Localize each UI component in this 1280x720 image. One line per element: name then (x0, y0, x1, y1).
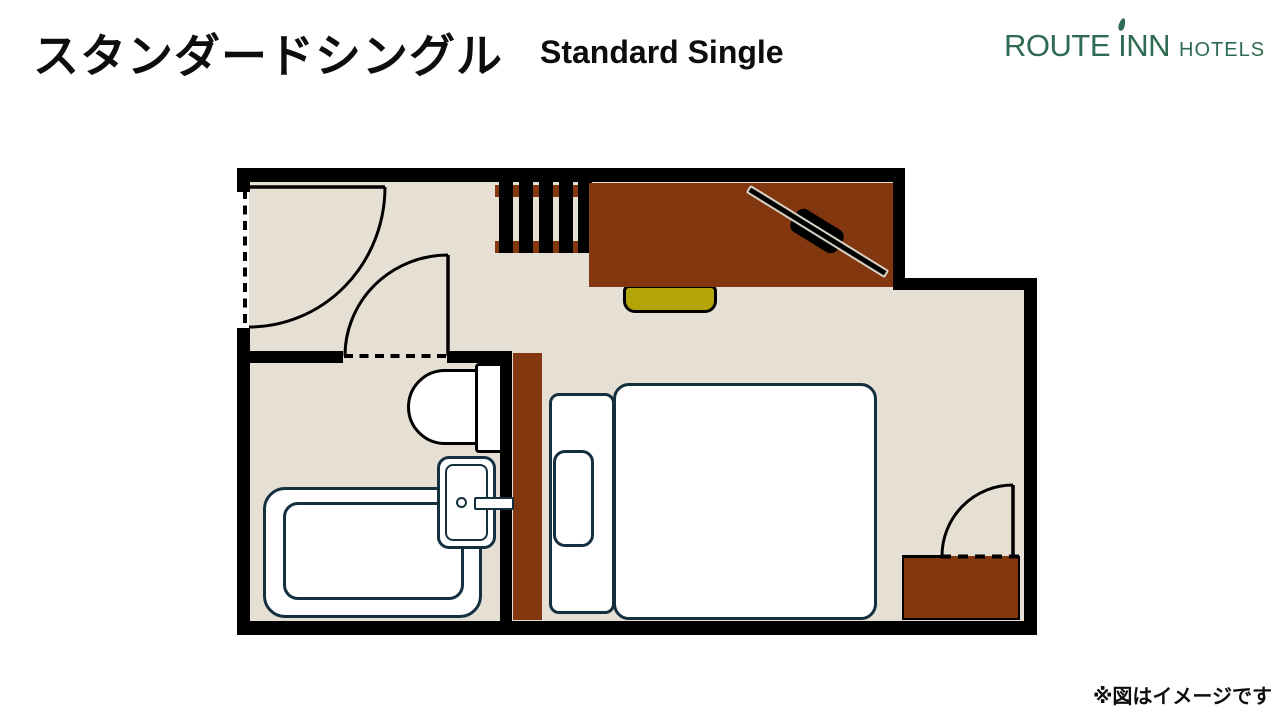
wall-left-upper (237, 168, 250, 192)
hanger-rack-post (519, 175, 533, 253)
bathroom-wall-vertical (500, 351, 512, 621)
bathroom-wall-left (249, 351, 343, 363)
wall-step (893, 278, 1037, 290)
wall-right (1024, 278, 1037, 635)
wall-right-upper (893, 168, 905, 290)
bed-pillow (553, 450, 594, 547)
nightstand-cabinet (513, 353, 542, 620)
desk (589, 183, 893, 287)
desk-chair (623, 285, 717, 313)
hanger-rack-post (539, 175, 553, 253)
hanger-rack-post (559, 175, 573, 253)
wall-top (237, 168, 905, 182)
wall-left-lower (237, 328, 250, 635)
sink-faucet (474, 497, 514, 510)
cabinet-fridge (902, 556, 1020, 620)
cabinet-fridge-top-edge (902, 555, 942, 558)
floor-plan (0, 0, 1280, 720)
hanger-rack-post (499, 175, 513, 253)
bed-mattress (613, 383, 877, 620)
disclaimer-note: ※図はイメージです (1093, 680, 1272, 709)
page: スタンダードシングル Standard Single ROUTE INN HOT… (0, 0, 1280, 720)
wall-bottom (237, 621, 1037, 635)
sink-drain (456, 497, 467, 508)
